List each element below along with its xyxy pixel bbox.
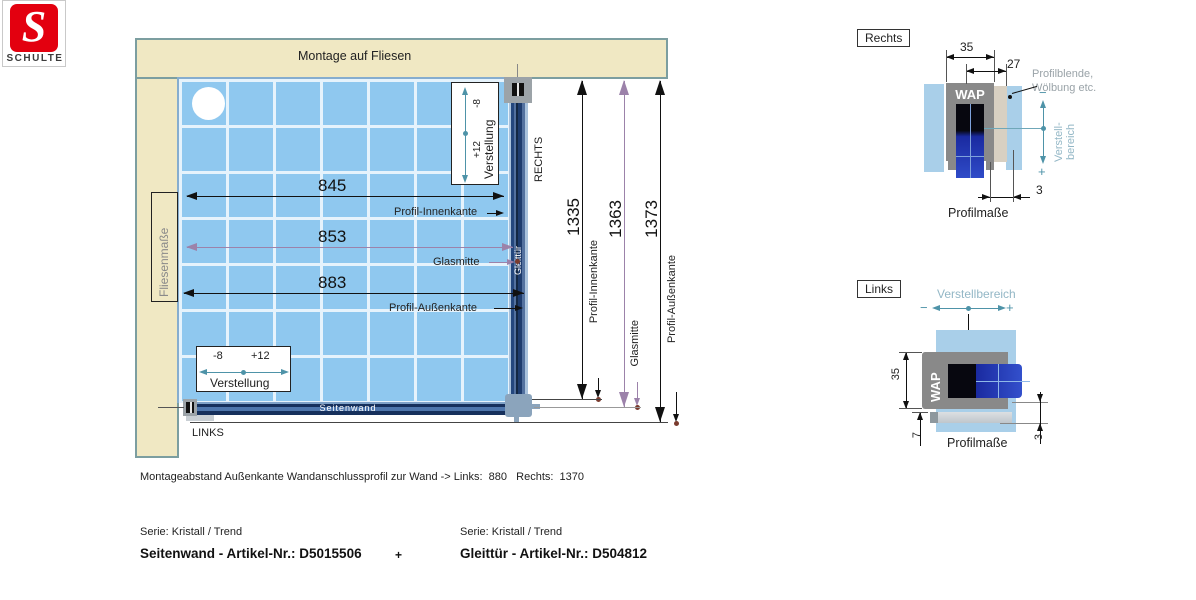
verstellung-box-bottom: -8 +12 Verstellung: [196, 346, 291, 392]
links-side-label: LINKS: [192, 427, 224, 439]
profil-aussenkante-label-h: Profil-Außenkante: [389, 302, 477, 314]
verstell-plus: +: [1038, 164, 1046, 179]
detail-rechts-title: Rechts: [857, 29, 910, 47]
dim-35-tick-right: [994, 50, 995, 82]
verstell-arrow-up: [1040, 100, 1046, 108]
profil-aussenkante-arrow: [515, 305, 523, 311]
ext-line-glasmitte: [534, 407, 641, 408]
dim-3-tick-right: [1013, 150, 1014, 202]
dim-27-value: 27: [1007, 57, 1020, 71]
wap-label: WAP: [946, 87, 994, 102]
dim-1373-value: 1373: [642, 200, 662, 238]
dim-1363-line: [624, 81, 625, 407]
wall-anchor-stub-top: [517, 64, 518, 77]
logo-s-glyph: S: [10, 1, 58, 49]
artikel-right: Gleittür - Artikel-Nr.: D504812: [460, 546, 647, 561]
glass-centerline-v: [970, 104, 971, 178]
dim-35-tick-bottom: [899, 408, 922, 409]
dim-845-arrow-left: [186, 192, 197, 200]
wall-anchor-icon: [512, 83, 524, 96]
schulte-logo-icon: S: [10, 4, 58, 52]
profil-innenkante-arrow: [496, 210, 504, 216]
profil-aussenkante-dot: [674, 421, 679, 426]
ext-line-innenkante: [532, 399, 602, 400]
profil-innenkante-label-h: Profil-Innenkante: [394, 206, 477, 218]
dim-1363-arrow-down: [619, 392, 629, 407]
profile-flange-left: [948, 161, 956, 170]
fliesenmasse-label: Fliesenmaße: [157, 197, 171, 297]
verstell-arrow-line: [1043, 106, 1044, 158]
wall-connector-line: [158, 407, 184, 408]
dim-35-arrow-up: [903, 352, 909, 360]
dim-853-arrow-right: [502, 243, 513, 251]
dim-845-value: 845: [318, 176, 346, 196]
detail-links-title: Links: [857, 280, 901, 298]
glass-links-black: [948, 364, 976, 398]
verstellung-box-top: -8 +12 Verstellung: [451, 82, 499, 185]
verstellung-arrow-left: [199, 369, 207, 375]
dim-883-line: [184, 293, 524, 294]
verstellbereich-arrow-right: [998, 305, 1006, 311]
verstell-minus: −: [1039, 85, 1047, 100]
dim-35-arrow-right: [986, 54, 994, 60]
dim-35-value: 35: [960, 40, 973, 54]
logo-brand-text: SCHULTE: [3, 53, 67, 64]
seitenwand-bar: Seitenwand: [186, 402, 510, 415]
verstellung-center-dot: [241, 370, 246, 375]
verstellung-plus: +12: [251, 350, 270, 362]
dim-853-line: [187, 247, 513, 248]
serie-left: Serie: Kristall / Trend: [140, 526, 242, 538]
glass-centerline-h: [976, 381, 1030, 382]
verstellbereich-label-line2: bereich: [1065, 102, 1077, 160]
profilblende-strip-links: [930, 412, 1012, 423]
verstellung-label: Verstellung: [210, 376, 269, 390]
glasmitte-ref-dot: [515, 259, 520, 264]
dim-1363-arrow-up: [619, 80, 629, 95]
dim-3-arrow-up: [1037, 423, 1043, 431]
dim-1335-arrow-up: [577, 80, 587, 95]
profilmasse-caption-links: Profilmaße: [947, 436, 1007, 450]
wall-anchor-left-icon: [186, 402, 194, 413]
glasmitte-label-v: Glasmitte: [629, 320, 641, 366]
glass-panel-left: [924, 84, 944, 172]
montage-auf-fliesen-label: Montage auf Fliesen: [298, 49, 411, 63]
glass-links-blue: [976, 364, 1022, 398]
dim-1335-line: [582, 81, 583, 399]
profilmasse-caption-rechts: Profilmaße: [948, 206, 1008, 220]
verstellbereich-minus: −: [920, 300, 928, 315]
ext-line-aussenkante: [190, 422, 668, 423]
seitenwand-label: Seitenwand: [186, 403, 510, 413]
dim-3-value-links: 3: [1033, 434, 1045, 440]
verstellbereich-center-dot: [966, 306, 971, 311]
profil-innenkante-leader: [487, 213, 496, 214]
verstellung-center-dot: [463, 131, 468, 136]
dim-853-arrow-left: [186, 243, 197, 251]
profilblende-note-line1: Profilblende,: [1032, 68, 1093, 80]
profilblende-strip: [994, 86, 1007, 162]
verstellbereich-plus: +: [1006, 300, 1014, 315]
dim-3-arrow-left: [982, 194, 990, 200]
dim-1335-value: 1335: [564, 198, 584, 236]
fliesenmasse-box: Fliesenmaße: [151, 192, 178, 302]
dim-845-arrow-right: [493, 192, 504, 200]
verstellbereich-label: Verstellbereich: [937, 287, 1016, 301]
artikel-left: Seitenwand - Artikel-Nr.: D5015506: [140, 546, 362, 561]
dim-1373-line: [660, 81, 661, 422]
dim-35-tick-top: [899, 352, 922, 353]
artikel-plus: +: [395, 548, 402, 562]
dim-1373-arrow-down: [655, 407, 665, 422]
logo-frame: S SCHULTE: [2, 0, 66, 67]
verstellbereich-arrow-left: [932, 305, 940, 311]
profilblende-leader-dot: [1008, 95, 1012, 99]
dim-3-arrow-down: [1037, 394, 1043, 402]
glass-rechts: [956, 104, 984, 178]
montage-note: Montageabstand Außenkante Wandanschlussp…: [140, 471, 584, 483]
verstellung-arrow-up: [462, 87, 468, 95]
dim-883-arrow-right: [513, 289, 524, 297]
verstellbereich-label-line1: Verstell-: [1053, 98, 1065, 162]
dim-3-value: 3: [1036, 183, 1043, 197]
dim-3-arrow-right: [1013, 194, 1021, 200]
shower-head-circle: [192, 87, 225, 120]
wap-label: WAP: [928, 360, 943, 402]
dim-27-tick-left: [966, 64, 967, 84]
dim-35-value-links: 35: [890, 368, 902, 380]
glasmitte-leader-v: [637, 382, 638, 399]
glasmitte-label-h: Glasmitte: [433, 256, 479, 268]
glass-centerline-v: [998, 364, 999, 398]
dim-27-tick-right: [1006, 64, 1007, 86]
profil-innenkante-label-v: Profil-Innenkante: [588, 240, 600, 323]
dim-35-arrow-left: [946, 54, 954, 60]
dim-883-arrow-left: [183, 289, 194, 297]
dim-1363-value: 1363: [606, 200, 626, 238]
profilblende-tab: [930, 412, 938, 423]
dim-35-tick-left: [946, 50, 947, 82]
profil-aussenkante-leader: [494, 308, 515, 309]
corner-joint: [505, 394, 532, 417]
verstell-center-dot: [1041, 126, 1046, 131]
dim-3-tick-left: [990, 162, 991, 202]
verstellung-minus: -8: [213, 350, 223, 362]
dim-7-tick: [912, 412, 928, 413]
dim-27-arrow-left: [966, 68, 974, 74]
glasmitte-arrow: [507, 259, 515, 265]
dim-1335-arrow-down: [577, 384, 587, 399]
verstellung-label: Verstellung: [482, 91, 496, 179]
dim-845-line: [187, 196, 504, 197]
dim-7-value: 7: [911, 432, 923, 438]
dim-7-arrow: [917, 412, 923, 420]
wall-anchor-top: [504, 77, 532, 103]
schulte-montage-diagram: S SCHULTE Montage auf Fliesen Fliesenmaß…: [0, 0, 1196, 600]
verstellung-arrow-right: [281, 369, 289, 375]
glasmitte-leader: [489, 262, 507, 263]
serie-right: Serie: Kristall / Trend: [460, 526, 562, 538]
profil-aussenkante-leader-v: [676, 392, 677, 415]
verstell-arrow-down: [1040, 156, 1046, 164]
dim-853-value: 853: [318, 227, 346, 247]
dim-3-ref-top: [1012, 402, 1048, 403]
glass-centerline-h: [956, 156, 984, 157]
dim-883-value: 883: [318, 273, 346, 293]
profil-aussenkante-label-v: Profil-Außenkante: [666, 255, 678, 343]
verstell-ref-line: [984, 128, 1042, 129]
wall-anchor-left: [183, 399, 197, 416]
rechts-side-label: RECHTS: [533, 86, 545, 182]
dim-27-arrow-right: [998, 68, 1006, 74]
dim-1373-arrow-up: [655, 80, 665, 95]
verstellung-arrow-down: [462, 175, 468, 183]
